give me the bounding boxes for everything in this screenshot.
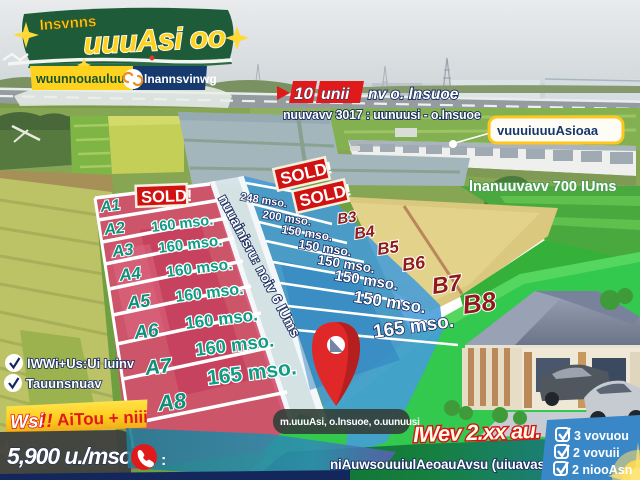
svg-text:A3: A3 bbox=[110, 241, 134, 262]
svg-text:lnannsvinwg: lnannsvinwg bbox=[144, 72, 217, 86]
svg-text:B6: B6 bbox=[401, 252, 428, 275]
svg-text:5,900 u./mso.: 5,900 u./mso. bbox=[7, 443, 137, 469]
svg-text:SOLD!: SOLD! bbox=[141, 187, 193, 207]
svg-text:A4: A4 bbox=[117, 263, 142, 285]
svg-text:B4: B4 bbox=[353, 223, 376, 243]
svg-text:B8: B8 bbox=[461, 286, 499, 320]
svg-text:niAuwsouuiulAeoauAvsu (uiuavas: niAuwsouuiulAeoauAvsu (uiuavasiv) bbox=[330, 457, 560, 472]
svg-text:A1: A1 bbox=[98, 197, 121, 216]
svg-text:nuuvavv 3017 : uunuusi - o.lns: nuuvavv 3017 : uunuusi - o.lnsuoe bbox=[283, 108, 481, 122]
svg-text:B7: B7 bbox=[430, 269, 464, 299]
svg-text:AiTou + niii: AiTou + niii bbox=[57, 407, 148, 429]
svg-text:10: 10 bbox=[294, 84, 313, 103]
svg-text:A6: A6 bbox=[132, 320, 160, 344]
svg-text:lWWi+Us:Ui Iuinv: lWWi+Us:Ui Iuinv bbox=[27, 356, 135, 371]
svg-text:lnanuuvavv 700 IUms: lnanuuvavv 700 IUms bbox=[469, 179, 617, 195]
svg-text:A2: A2 bbox=[102, 220, 125, 240]
svg-text:A8: A8 bbox=[156, 388, 189, 416]
svg-text:2 vovuii: 2 vovuii bbox=[573, 446, 620, 460]
svg-text:A5: A5 bbox=[125, 290, 152, 313]
svg-text:B5: B5 bbox=[376, 237, 401, 259]
svg-text:nv o. lnsuoe: nv o. lnsuoe bbox=[368, 86, 459, 103]
svg-text::: : bbox=[161, 452, 166, 469]
svg-text:2 niooAsn: 2 niooAsn bbox=[572, 463, 632, 477]
svg-text:Tauunsnuav: Tauunsnuav bbox=[26, 376, 102, 391]
svg-text:m.uuuAsi, o.lnsuoe, o.uunuusi: m.uuuAsi, o.lnsuoe, o.uunuusi bbox=[280, 417, 420, 428]
svg-text:wuunnouauluuu: wuunnouauluuu bbox=[35, 72, 133, 86]
svg-text:A7: A7 bbox=[143, 354, 174, 380]
svg-text:!!: !! bbox=[40, 411, 53, 432]
svg-text:vuuuiuuuAsioaa: vuuuiuuuAsioaa bbox=[497, 123, 599, 138]
svg-text:unii: unii bbox=[321, 86, 350, 103]
svg-text:3 vovuou: 3 vovuou bbox=[574, 429, 629, 443]
